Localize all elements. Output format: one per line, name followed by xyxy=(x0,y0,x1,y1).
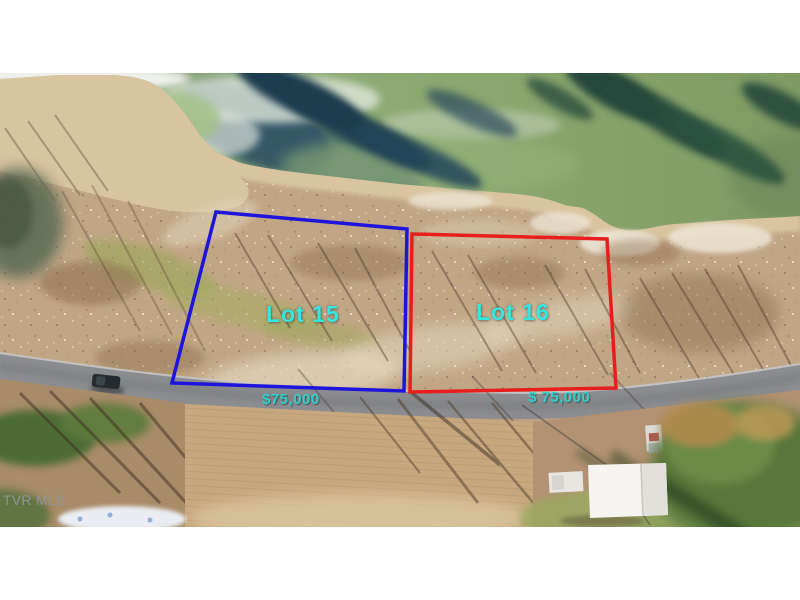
lot-15-price: $75,000 xyxy=(262,391,320,408)
aerial-photo: Lot 15 Lot 16 $75,000 $ 75,000 TVR MLS xyxy=(0,73,800,527)
letterbox-bottom xyxy=(0,527,800,600)
lot-16-label: Lot 16 xyxy=(476,299,550,326)
lot-15-label: Lot 15 xyxy=(266,301,340,328)
lot-16-price: $ 75,000 xyxy=(528,389,590,406)
mls-watermark: TVR MLS xyxy=(3,493,66,508)
photo-art xyxy=(0,73,800,527)
screenshot-canvas: Lot 15 Lot 16 $75,000 $ 75,000 TVR MLS xyxy=(0,0,800,600)
small-shed xyxy=(548,471,583,493)
letterbox-top xyxy=(0,0,800,73)
